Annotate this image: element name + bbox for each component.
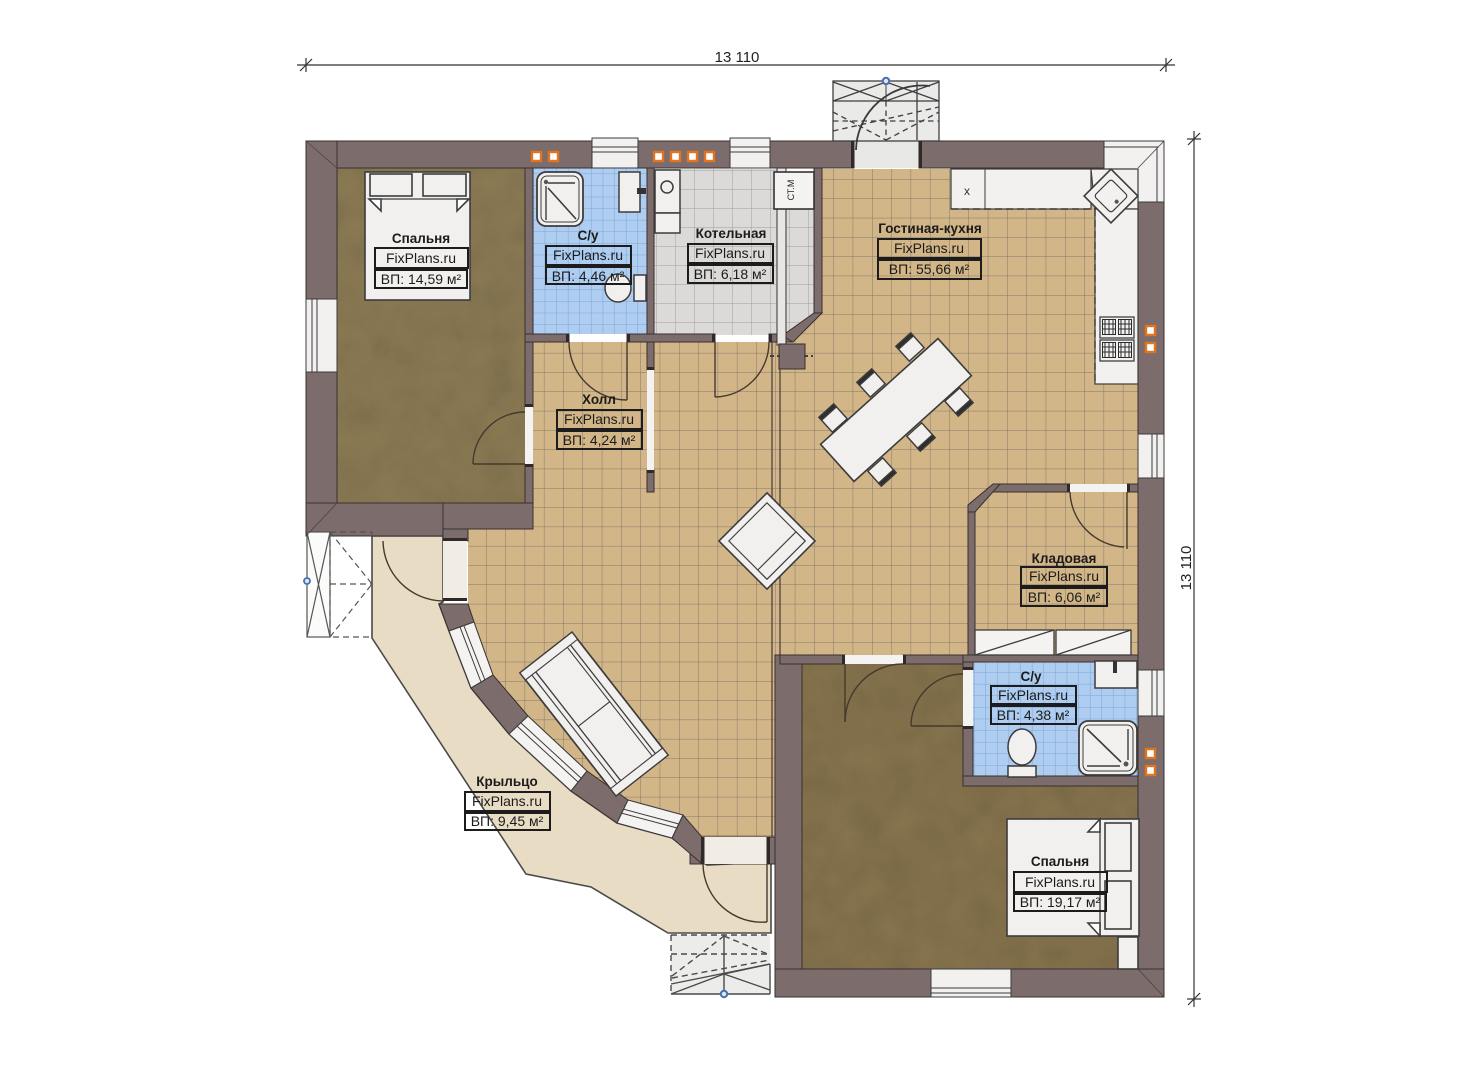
svg-text:FixPlans.ru: FixPlans.ru (472, 793, 542, 809)
svg-text:ВП: 6,06 м²: ВП: 6,06 м² (1028, 589, 1101, 605)
svg-text:ВП: 55,66 м²: ВП: 55,66 м² (889, 261, 970, 277)
svg-text:Спальня: Спальня (392, 231, 450, 246)
svg-text:Холл: Холл (582, 392, 616, 407)
svg-text:13 110: 13 110 (715, 49, 760, 66)
svg-text:ВП: 19,17 м²: ВП: 19,17 м² (1020, 894, 1101, 910)
svg-text:x: x (964, 184, 970, 198)
svg-text:ВП: 9,45 м²: ВП: 9,45 м² (471, 813, 544, 829)
svg-text:СТ.М: СТ.М (786, 180, 796, 201)
svg-text:Спальня: Спальня (1031, 854, 1089, 869)
svg-text:FixPlans.ru: FixPlans.ru (1029, 568, 1099, 584)
svg-text:Гостиная-кухня: Гостиная-кухня (878, 221, 981, 236)
svg-text:FixPlans.ru: FixPlans.ru (695, 245, 765, 261)
svg-text:FixPlans.ru: FixPlans.ru (998, 687, 1068, 703)
svg-text:ВП: 6,18 м²: ВП: 6,18 м² (694, 266, 767, 282)
svg-text:FixPlans.ru: FixPlans.ru (1025, 874, 1095, 890)
svg-text:Кладовая: Кладовая (1032, 551, 1097, 566)
svg-text:13 110: 13 110 (1178, 546, 1195, 591)
svg-text:ВП: 4,38 м²: ВП: 4,38 м² (997, 707, 1070, 723)
svg-text:ВП: 4,24 м²: ВП: 4,24 м² (563, 432, 636, 448)
svg-text:Крыльцо: Крыльцо (476, 774, 537, 789)
svg-text:С/у: С/у (577, 228, 599, 243)
svg-text:ВП: 14,59 м²: ВП: 14,59 м² (381, 271, 462, 287)
svg-text:FixPlans.ru: FixPlans.ru (553, 247, 623, 263)
svg-text:FixPlans.ru: FixPlans.ru (386, 250, 456, 266)
svg-text:Котельная: Котельная (696, 226, 767, 241)
svg-text:С/у: С/у (1020, 669, 1042, 684)
svg-text:FixPlans.ru: FixPlans.ru (564, 411, 634, 427)
svg-text:ВП: 4,46 м²: ВП: 4,46 м² (552, 268, 625, 284)
svg-text:FixPlans.ru: FixPlans.ru (894, 240, 964, 256)
